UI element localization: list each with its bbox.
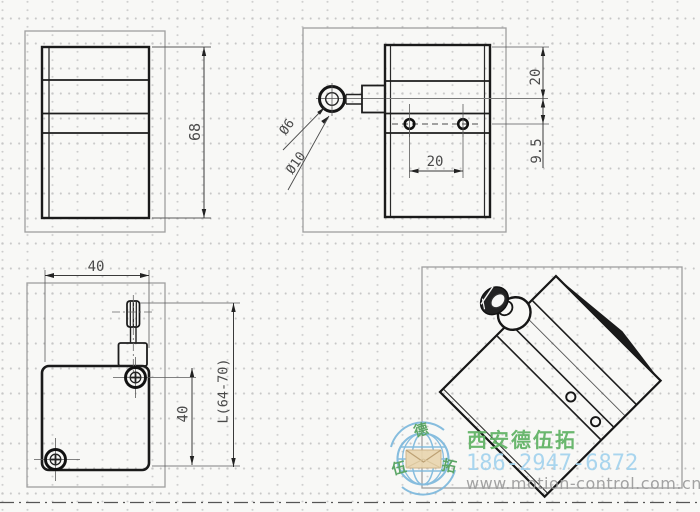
dim-back-height: 68	[152, 47, 211, 218]
dim-label-dia6: Ø6	[277, 117, 298, 138]
dim-label-dia10: Ø10	[284, 149, 310, 177]
dim-label-40-side: 40	[176, 406, 192, 423]
engineering-drawing-sheet: 68 Ø6	[0, 0, 700, 512]
iso-cable-gland	[475, 276, 537, 338]
dim-label-20-top: 20	[528, 69, 544, 86]
screw-top-right-icon	[113, 357, 196, 398]
dim-label-20-holes: 20	[427, 154, 444, 170]
back-view-frame	[25, 31, 165, 232]
dim-label-length: L(64-70)	[216, 358, 232, 423]
front-view-frame	[27, 283, 165, 487]
side-view-frame	[303, 28, 506, 232]
iso-hole-2	[589, 415, 602, 428]
dim-label-68: 68	[186, 123, 204, 141]
wire-loop-eyelet	[320, 83, 345, 116]
watermark-website: www.motion-control.com.cn	[466, 474, 700, 493]
front-view: 40	[27, 259, 240, 487]
globe-logo-icon: 德 伍 拓	[389, 419, 459, 494]
cable-gland	[112, 295, 155, 372]
iso-top-face-sliver	[557, 272, 664, 379]
wire-outlet-block	[362, 86, 385, 113]
dim-side-right: 20 9.5	[492, 47, 549, 168]
side-view: Ø6 Ø10 20 20 9.5	[277, 28, 549, 232]
dim-hole-spacing: 20	[410, 130, 464, 178]
envelope-icon	[406, 450, 441, 468]
watermark-company: 西安德伍拓	[467, 428, 577, 452]
watermark: 德 伍 拓 西安德伍拓 186-2947-6872 www.motion-con…	[389, 419, 700, 494]
back-view: 68	[25, 31, 211, 232]
dim-label-40-width: 40	[88, 259, 105, 275]
logo-char-right: 拓	[440, 456, 458, 477]
dim-label-9-5: 9.5	[529, 138, 545, 163]
dim-overall-length: L(64-70)	[140, 303, 240, 467]
iso-hole-1	[564, 390, 577, 403]
drawing-canvas: 68 Ø6	[0, 0, 700, 512]
side-view-body	[385, 45, 490, 217]
watermark-phone: 186-2947-6872	[466, 451, 638, 476]
